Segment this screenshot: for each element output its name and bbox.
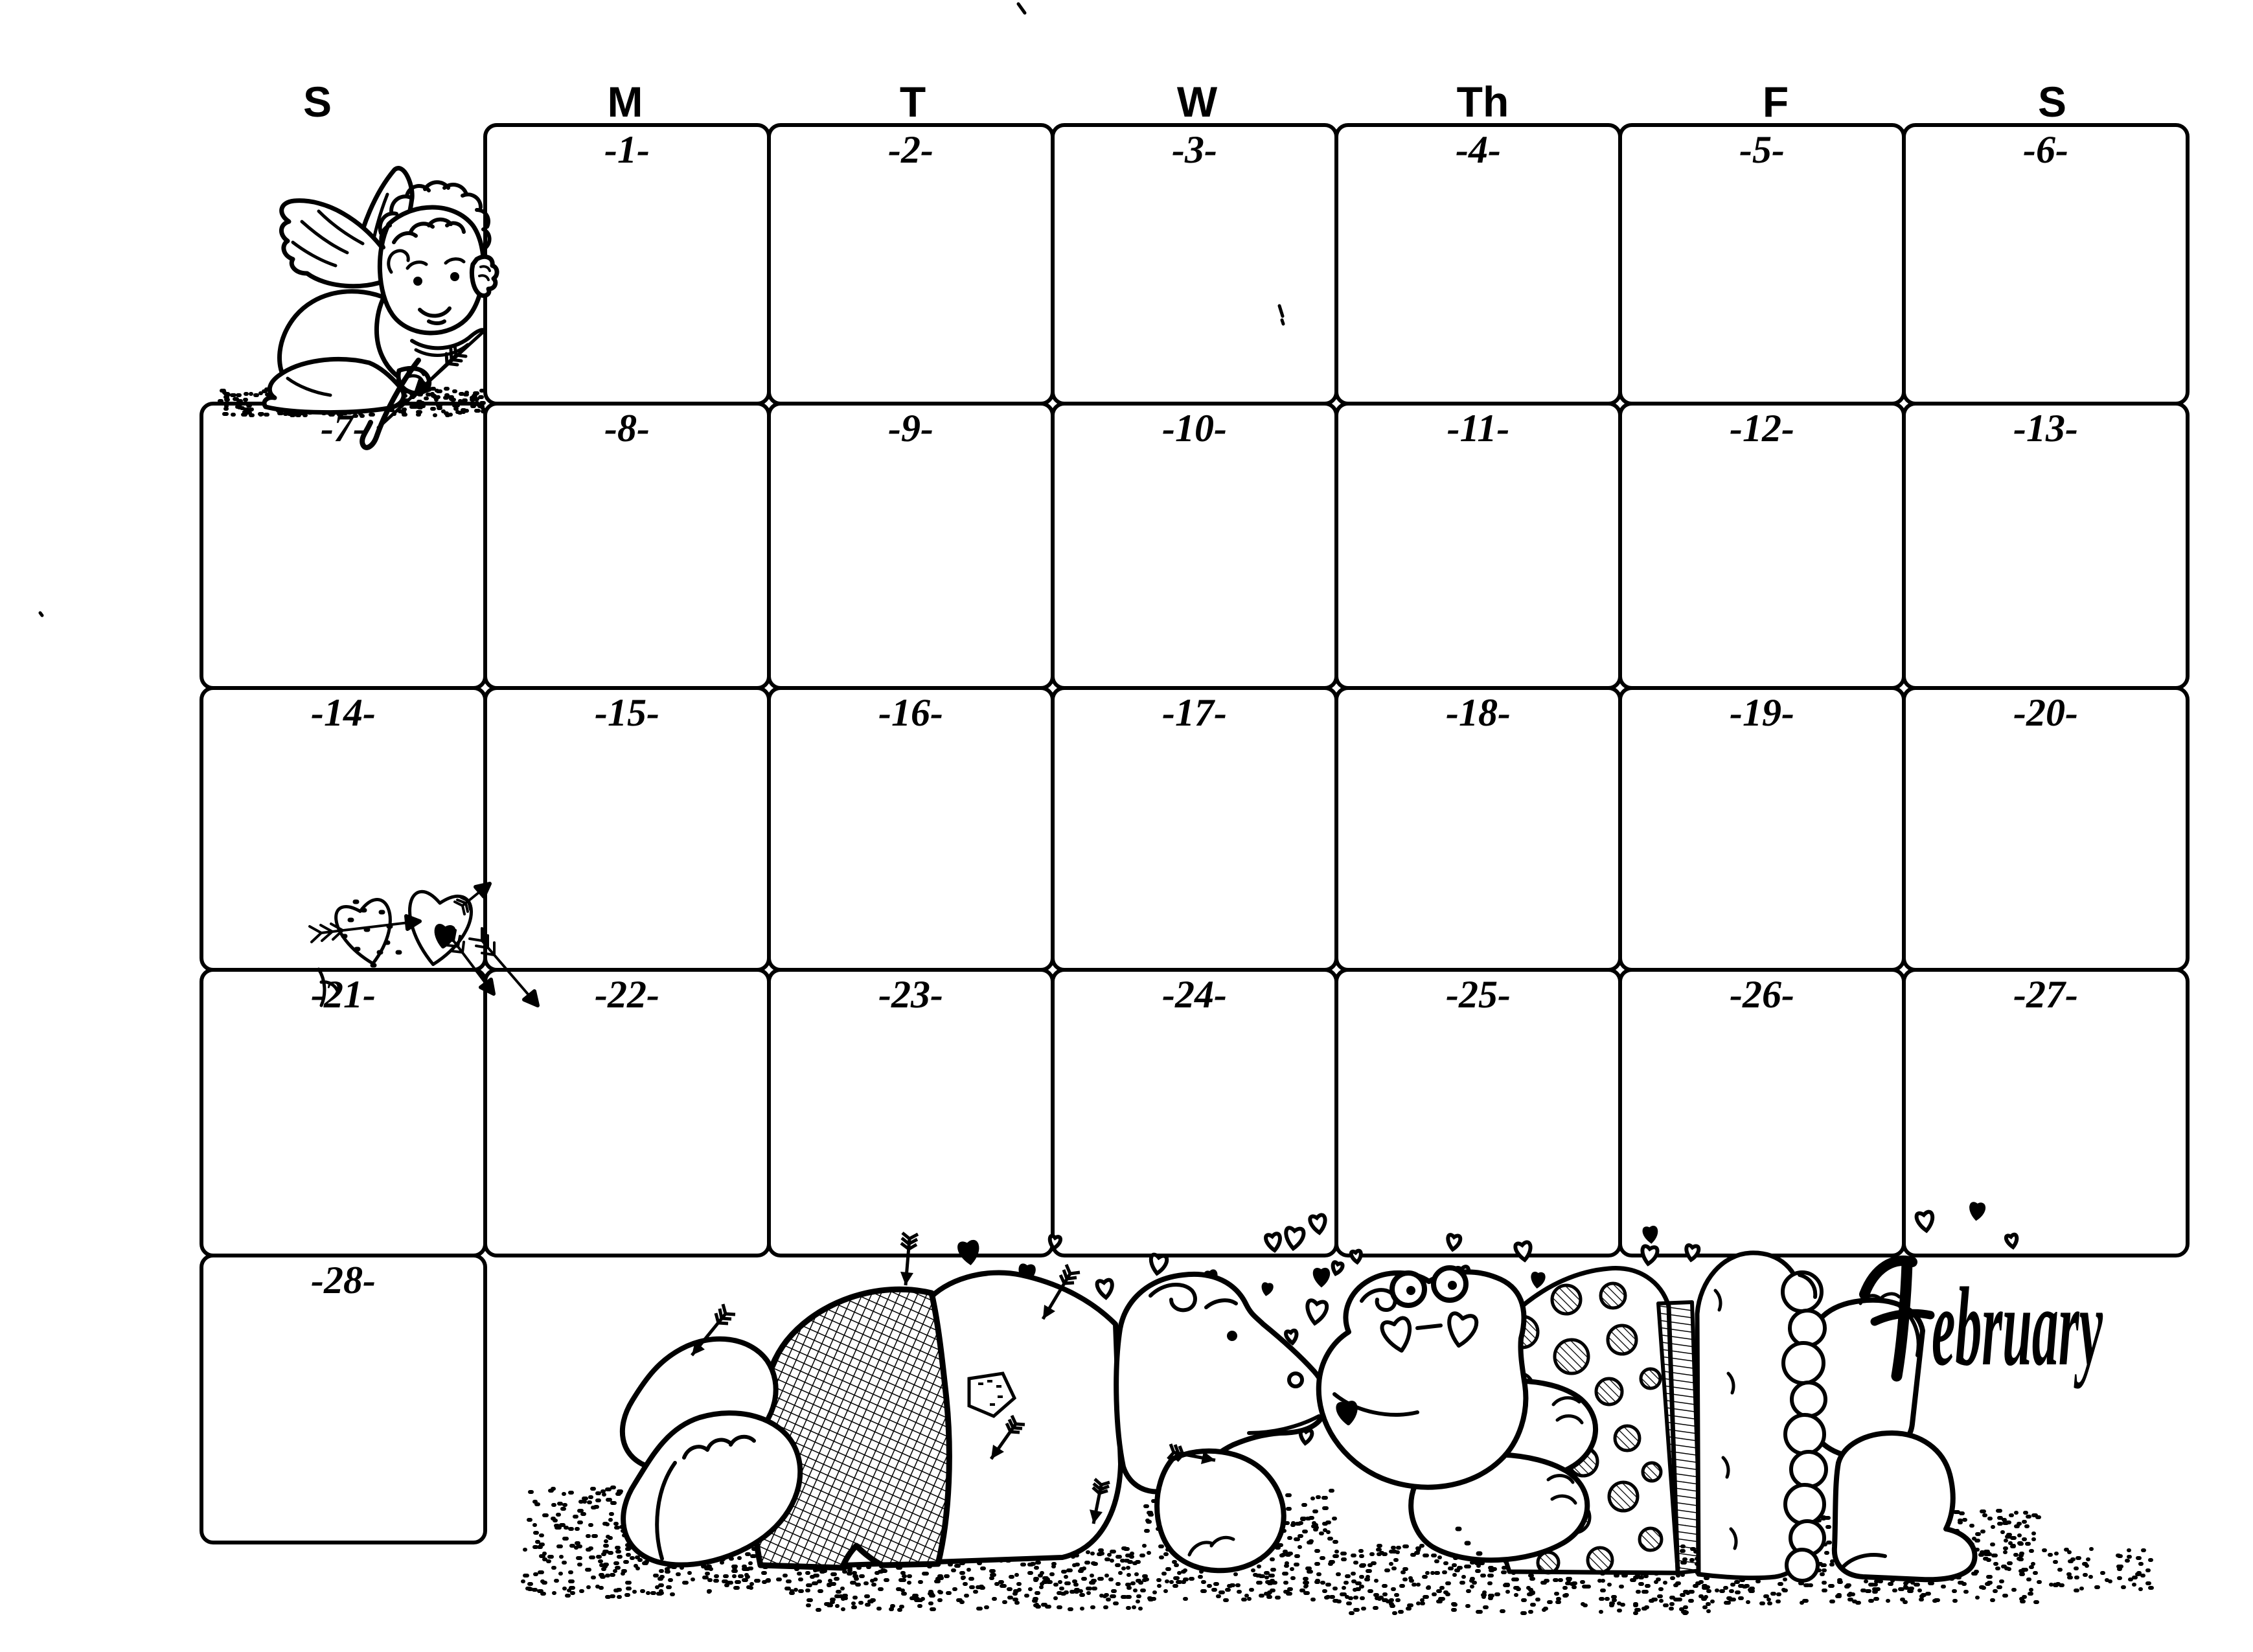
svg-text:-14-: -14-: [311, 691, 376, 734]
svg-text:-1-: -1-: [604, 128, 650, 171]
svg-text:-9-: -9-: [888, 407, 933, 450]
svg-text:-10-: -10-: [1162, 407, 1227, 450]
svg-text:-5-: -5-: [1739, 128, 1785, 171]
svg-text:-4-: -4-: [1456, 128, 1501, 171]
svg-text:-17-: -17-: [1162, 691, 1227, 734]
svg-text:-25-: -25-: [1446, 973, 1511, 1016]
svg-text:ebruary: ebruary: [1932, 1265, 2103, 1390]
svg-text:-8-: -8-: [604, 407, 650, 450]
svg-text:-13-: -13-: [2013, 407, 2078, 450]
svg-text:W: W: [1177, 78, 1218, 126]
svg-text:S: S: [303, 78, 332, 126]
svg-text:-28-: -28-: [311, 1259, 376, 1302]
svg-text:S: S: [2038, 78, 2066, 126]
svg-text:T: T: [900, 78, 926, 126]
svg-text:-19-: -19-: [1730, 691, 1794, 734]
svg-text:-12-: -12-: [1730, 407, 1794, 450]
svg-text:M: M: [608, 78, 643, 126]
svg-text:-21-: -21-: [311, 973, 376, 1016]
svg-text:-27-: -27-: [2013, 973, 2078, 1016]
svg-text:Th: Th: [1457, 78, 1509, 126]
svg-text:-20-: -20-: [2013, 691, 2078, 734]
svg-text:-15-: -15-: [595, 691, 659, 734]
svg-text:-2-: -2-: [888, 128, 933, 171]
svg-text:-6-: -6-: [2023, 128, 2068, 171]
svg-text:-24-: -24-: [1162, 973, 1227, 1016]
svg-text:F: F: [1763, 78, 1789, 126]
svg-text:-3-: -3-: [1172, 128, 1217, 171]
svg-text:-26-: -26-: [1730, 973, 1794, 1016]
svg-text:-18-: -18-: [1446, 691, 1511, 734]
svg-text:-23-: -23-: [878, 973, 943, 1016]
svg-text:-16-: -16-: [878, 691, 943, 734]
svg-text:-11-: -11-: [1447, 407, 1510, 450]
svg-text:-22-: -22-: [595, 973, 659, 1016]
